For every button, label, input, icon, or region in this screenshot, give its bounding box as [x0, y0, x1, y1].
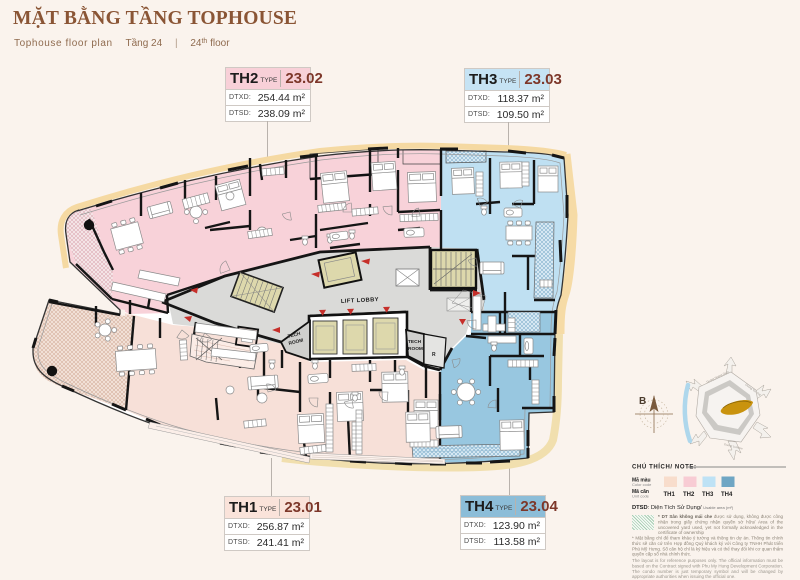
svg-text:ROOM: ROOM — [408, 346, 423, 352]
svg-text:B: B — [639, 396, 646, 407]
svg-text:TECH: TECH — [408, 339, 422, 345]
svg-text:R: R — [432, 352, 436, 358]
